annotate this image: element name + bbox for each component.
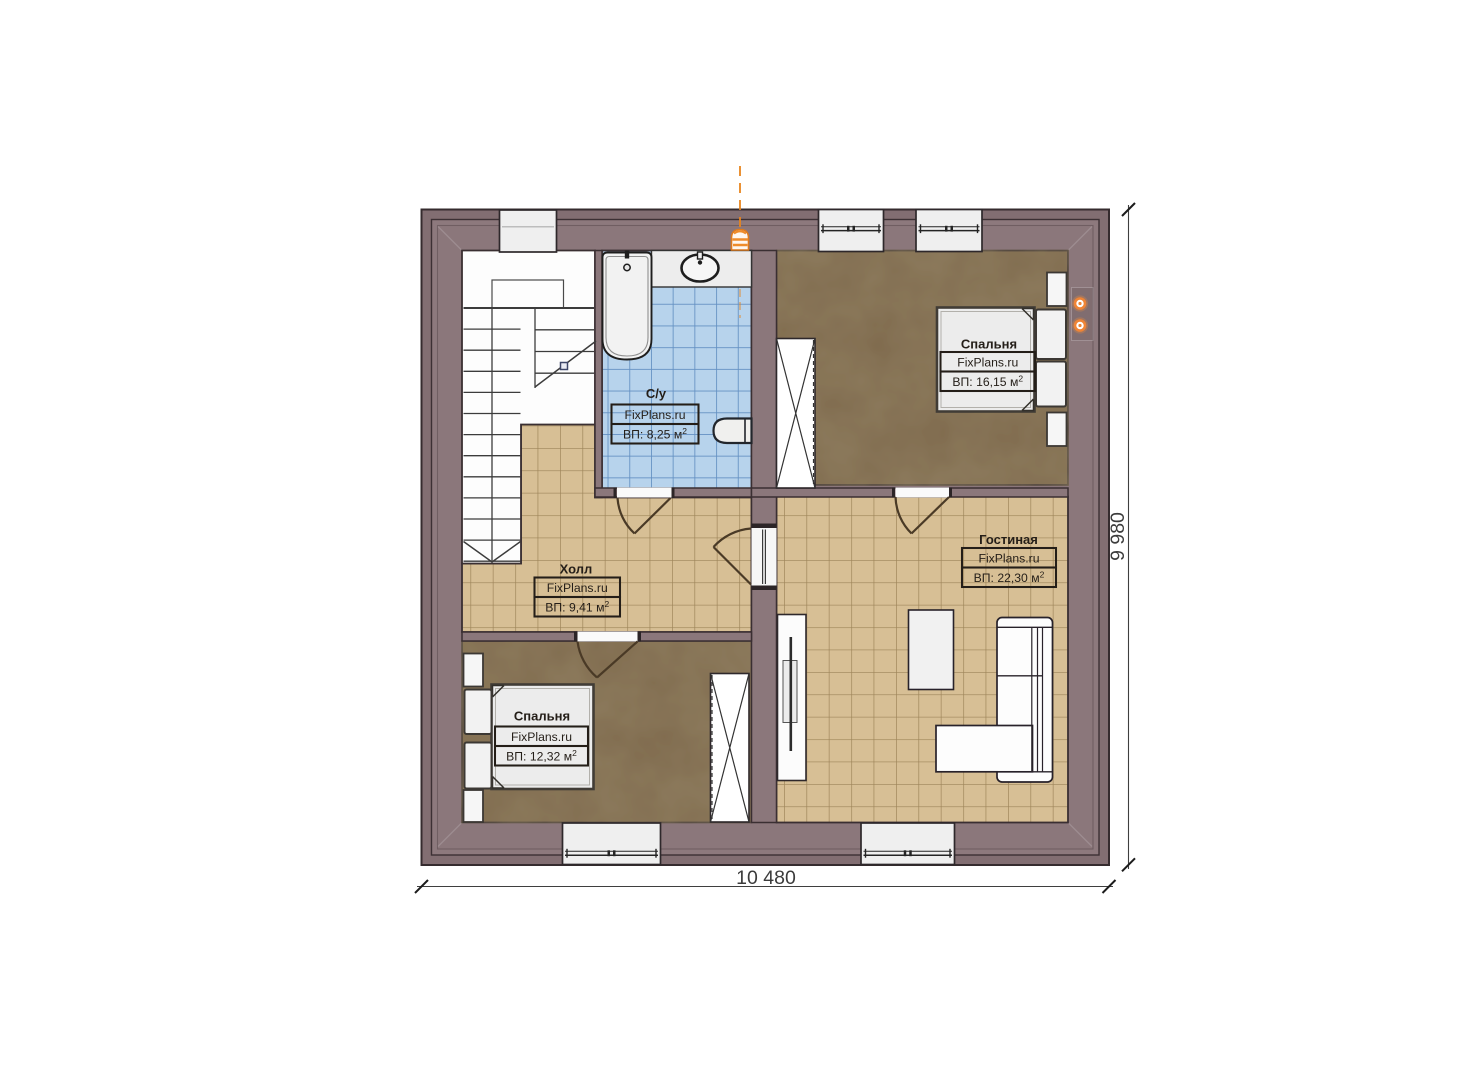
svg-text:FixPlans.ru: FixPlans.ru	[511, 730, 572, 744]
svg-text:ВП: 16,15 м2: ВП: 16,15 м2	[952, 374, 1023, 390]
svg-text:ВП: 9,41 м2: ВП: 9,41 м2	[545, 599, 609, 615]
svg-text:Холл: Холл	[560, 562, 593, 577]
svg-text:ВП: 8,25 м2: ВП: 8,25 м2	[623, 426, 687, 442]
svg-text:FixPlans.ru: FixPlans.ru	[547, 581, 608, 595]
svg-text:10 480: 10 480	[736, 867, 796, 889]
svg-text:ВП: 12,32 м2: ВП: 12,32 м2	[506, 748, 577, 764]
svg-text:FixPlans.ru: FixPlans.ru	[625, 408, 686, 422]
svg-text:Гостиная: Гостиная	[979, 532, 1038, 547]
svg-text:Спальня: Спальня	[514, 709, 570, 724]
svg-text:Спальня: Спальня	[961, 337, 1017, 352]
svg-text:9 980: 9 980	[1107, 512, 1129, 561]
svg-text:FixPlans.ru: FixPlans.ru	[957, 356, 1018, 370]
svg-text:FixPlans.ru: FixPlans.ru	[979, 552, 1040, 566]
svg-text:С/у: С/у	[646, 386, 667, 401]
svg-text:ВП: 22,30 м2: ВП: 22,30 м2	[974, 570, 1045, 586]
